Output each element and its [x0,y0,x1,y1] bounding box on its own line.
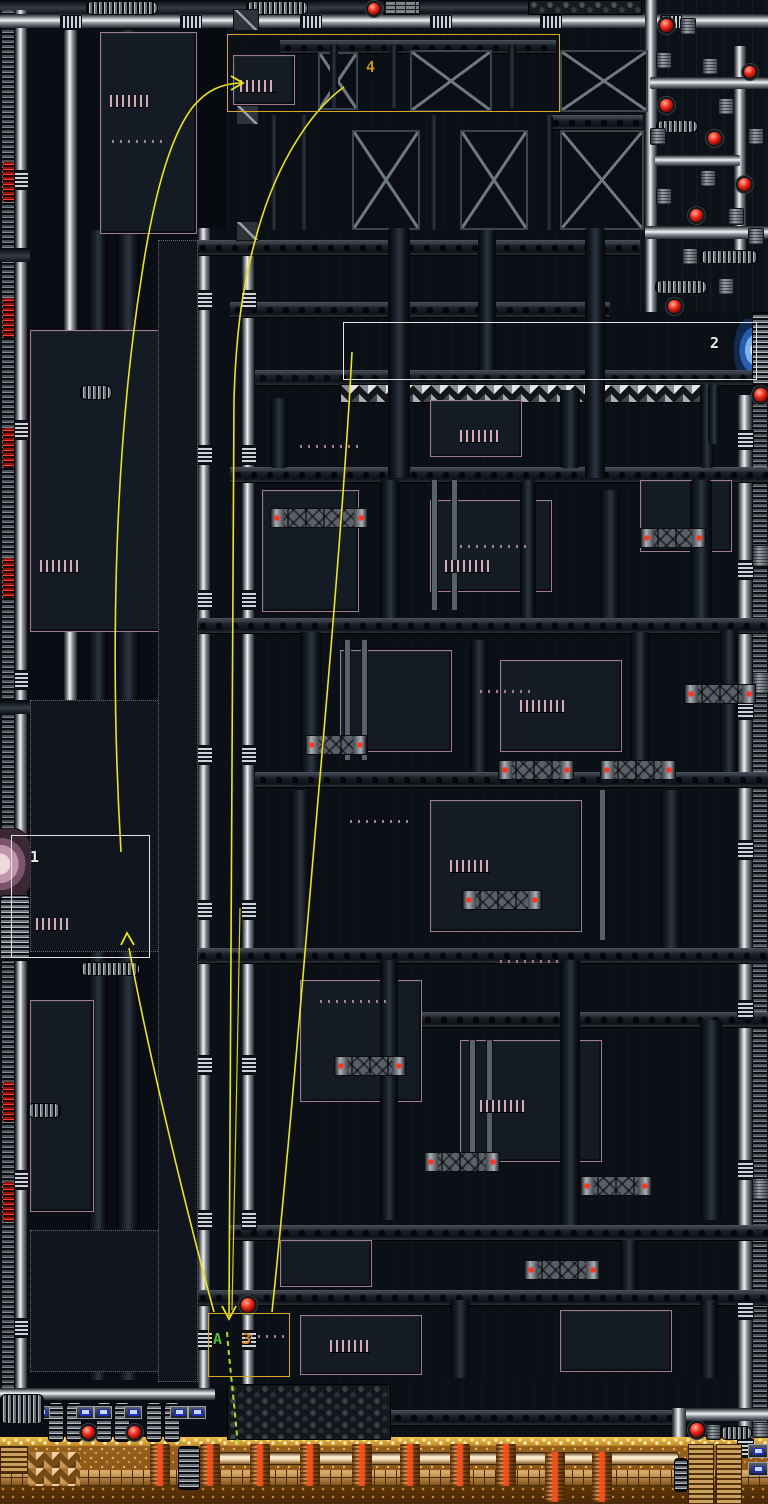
zone-label-3: 3 [242,1330,251,1348]
route-line-4-to-3 [229,87,344,1316]
route-overlay [0,0,768,1504]
zone-box-4 [227,34,560,112]
route-annotation-layer: 4 2 1 3 A [0,0,768,1504]
zone-label-4: 4 [366,58,375,76]
route-line-shaft-return [232,908,240,1310]
route-line-1-to-4 [115,83,240,852]
zone-box-2 [343,322,757,380]
point-label-A: A [213,1330,222,1348]
route-line-3-to-1 [129,948,214,1312]
zone-label-1: 1 [30,848,39,866]
route-line-2-to-3 [272,352,352,1312]
level-map: 4 2 1 3 A [0,0,768,1504]
zone-label-2: 2 [710,334,719,352]
